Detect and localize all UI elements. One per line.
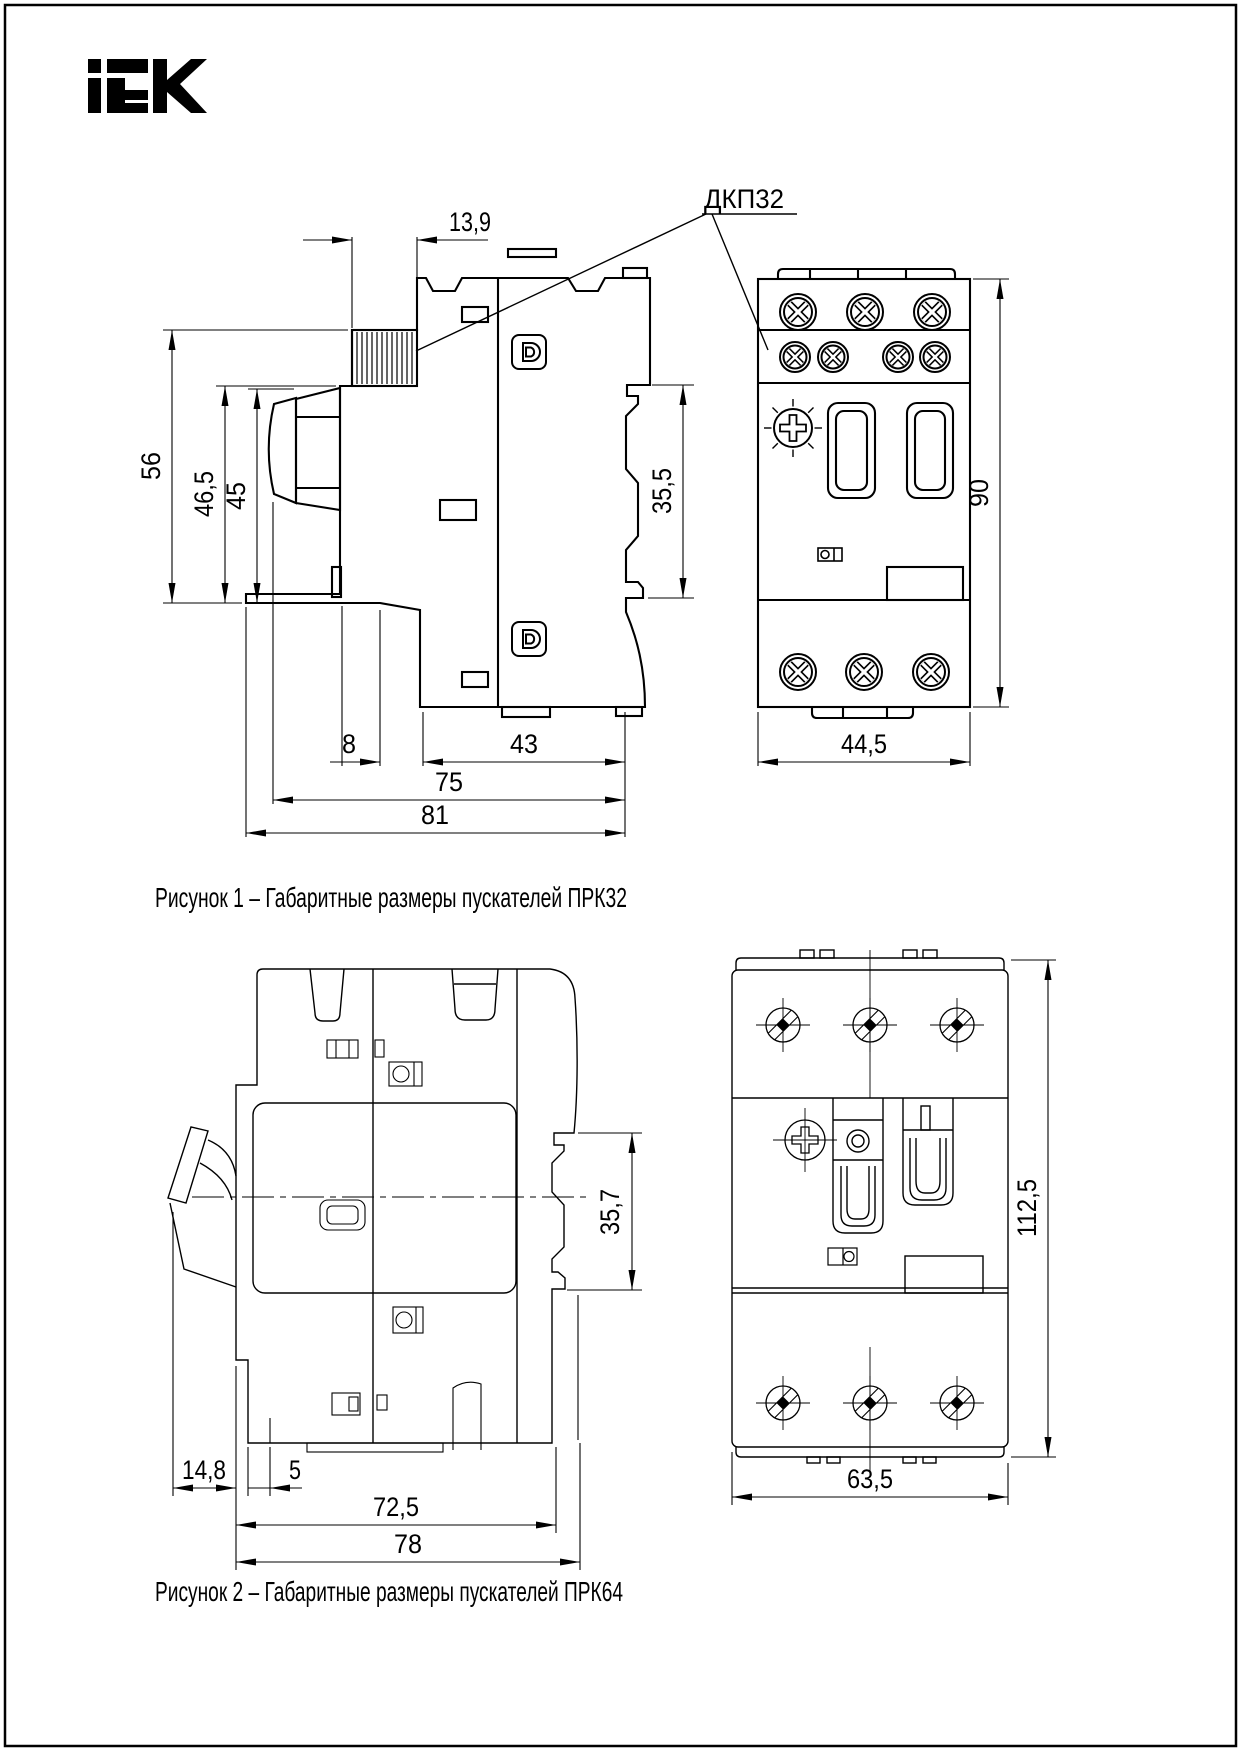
dim-label: 75 — [435, 767, 463, 797]
terminal-screw — [818, 342, 848, 372]
stop-button — [907, 403, 953, 498]
dim-label: 14,8 — [182, 1455, 226, 1485]
dim-label: 35,7 — [595, 1189, 625, 1235]
datasheet-page: IEK — [0, 0, 1241, 1751]
figure2-caption: Рисунок 2 – Габаритные размеры пускателе… — [155, 1576, 623, 1607]
dim-label: 43 — [510, 729, 538, 759]
dim-label: 90 — [964, 479, 994, 507]
dim-label: 78 — [394, 1529, 422, 1559]
lever-side — [168, 1127, 236, 1287]
terminal-screw — [780, 342, 810, 372]
terminal-screw — [846, 654, 882, 690]
figure2-dimension-labels: 14,8 5 72,5 78 35,7 63,5 112,5 — [182, 1179, 1042, 1559]
terminal-screw — [780, 294, 816, 330]
dim-label: 112,5 — [1012, 1179, 1042, 1237]
dim-label: 35,5 — [647, 468, 677, 514]
trip-indicator — [818, 548, 842, 561]
dim-label: 13,9 — [449, 207, 491, 237]
mounting-screw — [756, 1376, 810, 1430]
figure1-front-view — [758, 269, 970, 718]
terminal-screw — [883, 342, 913, 372]
figure2-front-view — [732, 950, 1008, 1475]
dim-label: 72,5 — [373, 1492, 419, 1522]
dim-label: 63,5 — [847, 1464, 893, 1494]
figure1-caption: Рисунок 1 – Габаритные размеры пускателе… — [155, 882, 627, 913]
iek-logo: IEK — [88, 59, 207, 113]
terminal-screw — [920, 342, 950, 372]
terminal-screw — [913, 654, 949, 690]
adjustment-screw — [773, 1108, 837, 1172]
start-button-column — [833, 1098, 883, 1233]
label-field — [887, 567, 963, 600]
mounting-screw — [930, 1376, 984, 1430]
mounting-screw — [930, 998, 984, 1052]
adjustment-dial — [764, 399, 822, 457]
figure1-drawing: ДКП32 — [136, 184, 1009, 913]
figure1-dimension-labels: 13,9 56 46,5 45 35,5 8 43 75 81 90 44,5 — [136, 207, 994, 830]
dim-label: 56 — [136, 452, 166, 480]
figure1-side-view — [246, 249, 650, 717]
dim-label: 5 — [289, 1455, 301, 1485]
stop-button-column — [903, 1098, 953, 1205]
figure2-side-view — [168, 969, 590, 1452]
dim-label: 8 — [342, 729, 356, 759]
callout-label: ДКП32 — [704, 184, 784, 214]
dim-label: 81 — [421, 800, 449, 830]
dim-label: 45 — [221, 482, 251, 510]
dim-label: 46,5 — [189, 471, 219, 517]
figure2-drawing: 14,8 5 72,5 78 35,7 63,5 112,5 Рисунок 2… — [155, 950, 1056, 1607]
terminal-screw — [914, 294, 950, 330]
terminal-screw — [780, 654, 816, 690]
terminal-screw — [847, 294, 883, 330]
trip-indicator — [828, 1248, 857, 1265]
dim-label: 44,5 — [841, 729, 887, 759]
knob-side — [296, 388, 340, 510]
figure2-dimensions — [173, 960, 1056, 1570]
mounting-screw — [756, 998, 810, 1052]
knob-side — [269, 398, 296, 503]
